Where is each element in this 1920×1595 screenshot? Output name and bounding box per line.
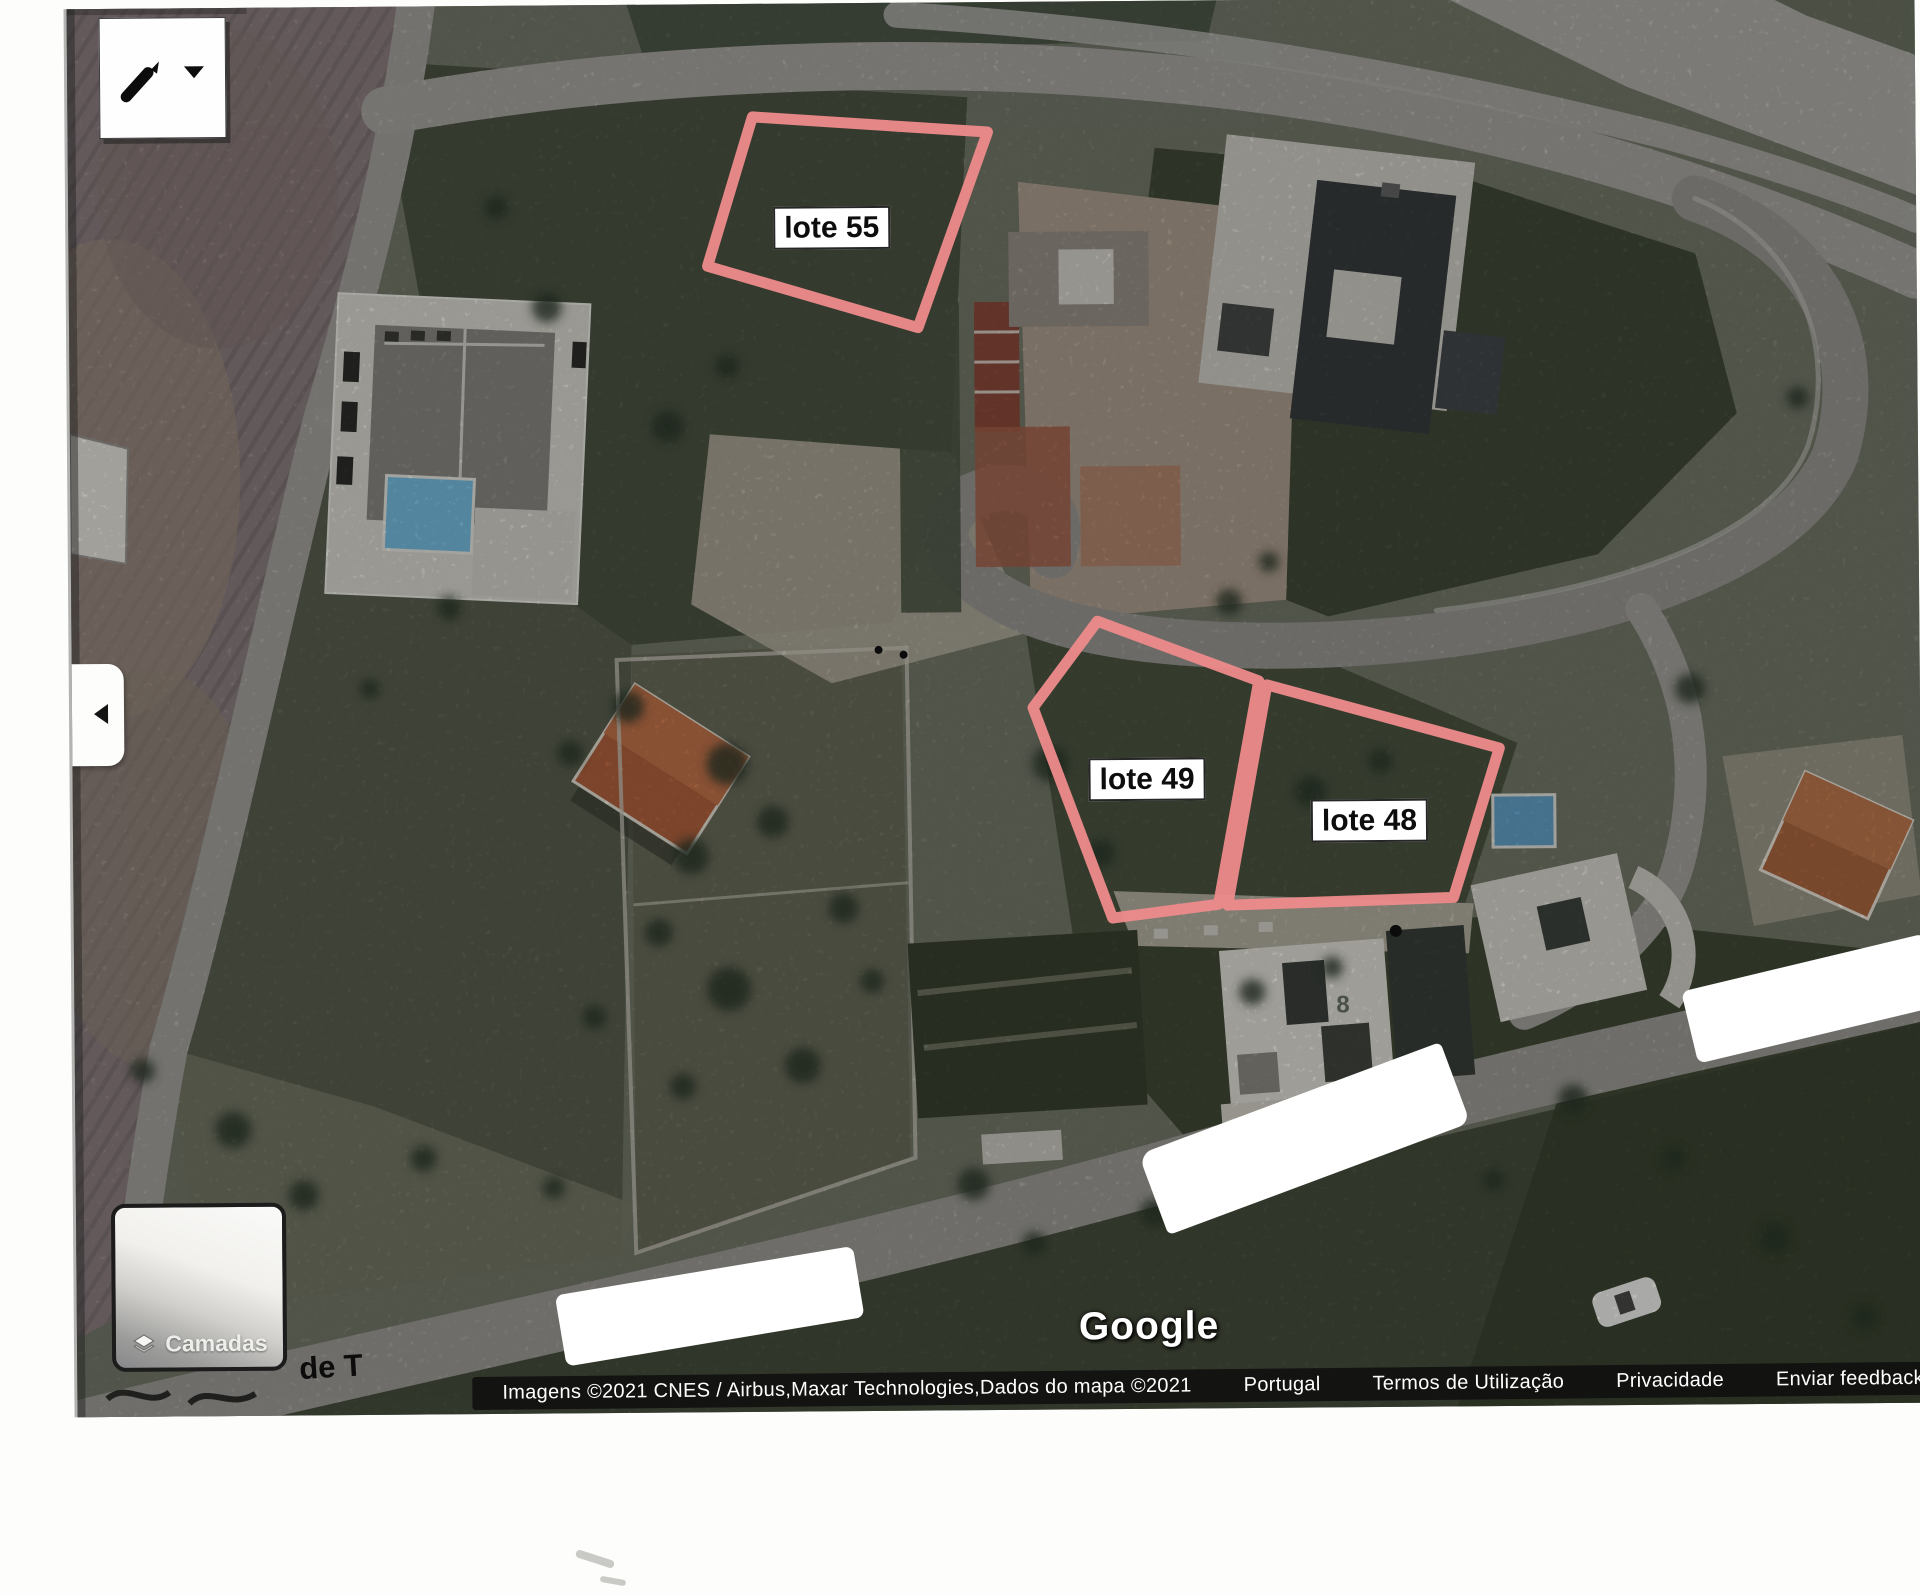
draw-tool-button[interactable] <box>99 17 227 139</box>
lot-label-48[interactable]: lote 48 <box>1311 799 1428 843</box>
scanned-page: lote 55 lote 49 lote 48 8 de T <box>0 0 1920 1595</box>
attribution-link-privacy[interactable]: Privacidade <box>1616 1369 1724 1393</box>
pencil-icon <box>110 48 175 113</box>
house-number-label: 8 <box>1336 991 1350 1019</box>
lot-label-55[interactable]: lote 55 <box>773 206 890 250</box>
left-arrow-icon <box>94 704 108 724</box>
lot-label-49[interactable]: lote 49 <box>1088 757 1205 801</box>
scan-smudge <box>600 1576 627 1586</box>
attribution-link-terms[interactable]: Termos de Utilização <box>1372 1371 1564 1396</box>
street-name-partial: de T <box>298 1347 364 1387</box>
dropdown-caret-icon[interactable] <box>184 66 204 78</box>
scan-smudge <box>575 1549 616 1569</box>
layers-button-label: Camadas <box>165 1330 267 1358</box>
attribution-link-portugal[interactable]: Portugal <box>1244 1373 1321 1397</box>
layers-icon <box>131 1331 157 1357</box>
attribution-link-feedback[interactable]: Enviar feedback <box>1776 1367 1920 1392</box>
satellite-map[interactable]: lote 55 lote 49 lote 48 8 de T <box>66 0 1920 1417</box>
scan-grain <box>66 0 1920 1417</box>
collapse-panel-button[interactable] <box>68 664 125 766</box>
imagery-credit: Imagens ©2021 CNES / Airbus,Maxar Techno… <box>502 1375 1191 1405</box>
google-logo[interactable]: Google <box>1079 1304 1220 1349</box>
layers-button[interactable]: Camadas <box>111 1203 287 1372</box>
satellite-imagery <box>66 0 1920 1417</box>
